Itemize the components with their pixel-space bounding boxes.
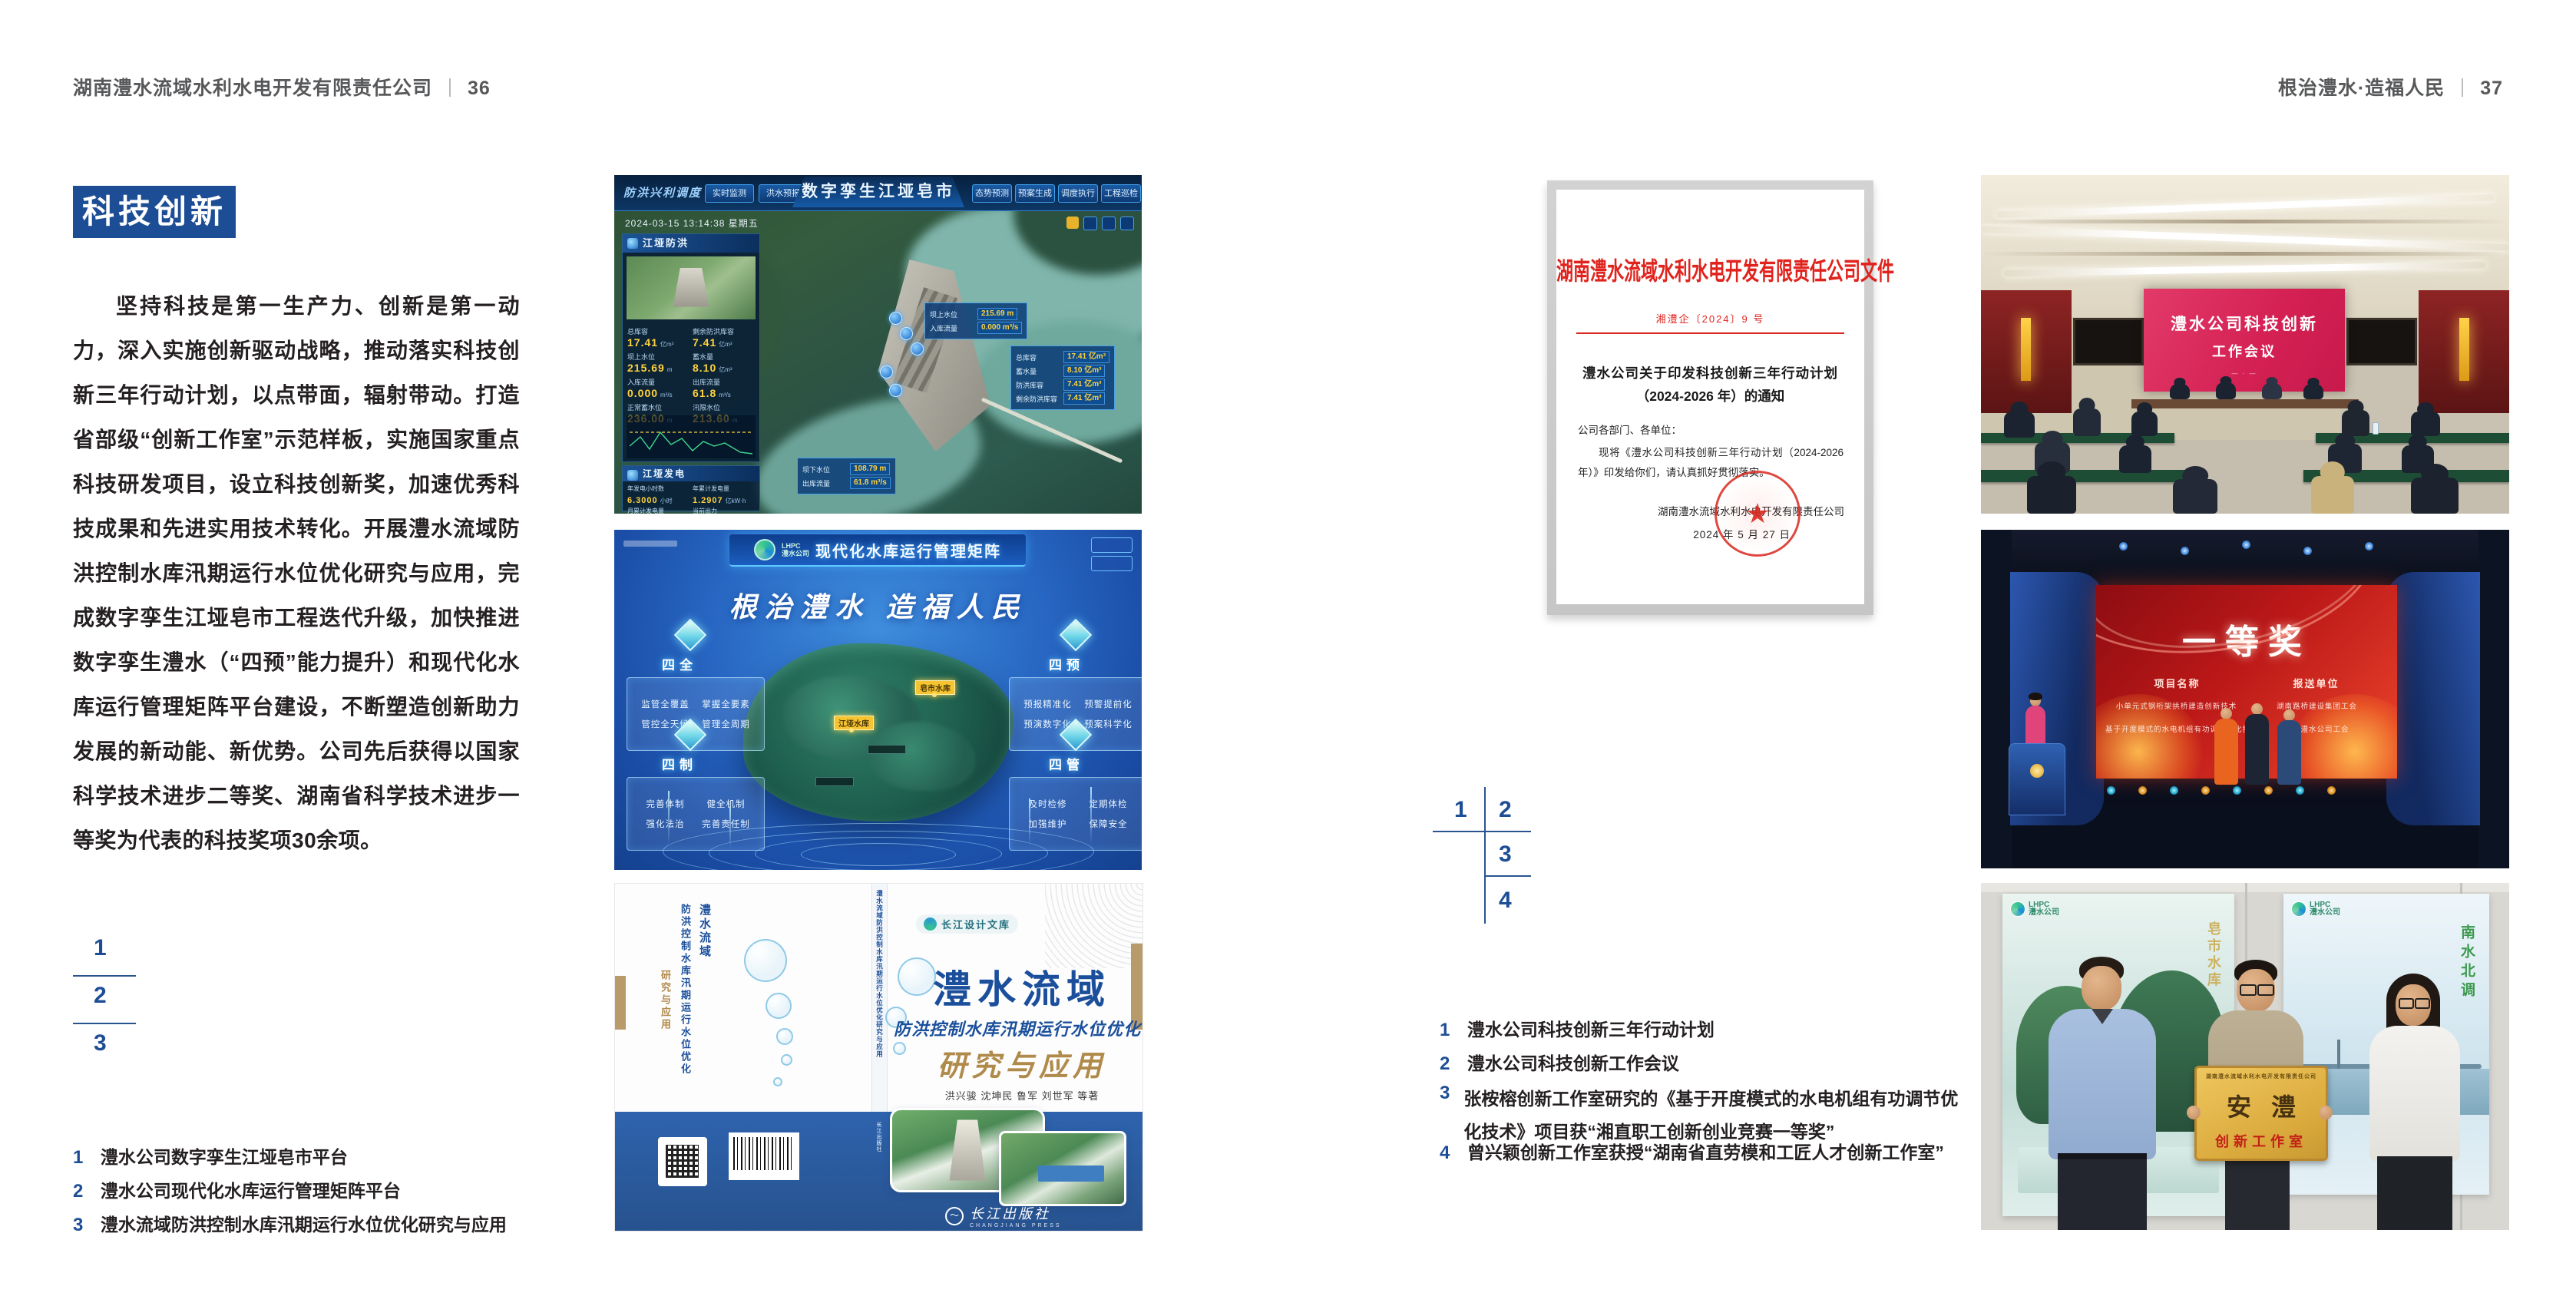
back-cover-tan-block [615, 976, 626, 1030]
stage-edge [1981, 530, 2012, 868]
gate-marker [880, 365, 893, 379]
stat: 坝上水位215.69m [627, 352, 689, 375]
figure-book-cover: 澧水流域 防洪控制水库汛期运行水位优化 研究与应用 澧水流域防洪控制水库汛期运行… [614, 883, 1143, 1232]
caption-row: 1 澧水公司数字孪生江垭皂市平台 [73, 1142, 348, 1169]
audience-silhouette [2131, 412, 2158, 436]
poster-logo: LHPC澧水公司 [2291, 901, 2340, 917]
marker-dot [849, 728, 854, 732]
lhpc-logo-text: LHPC澧水公司 [782, 542, 809, 557]
man1-trousers [2058, 1159, 2147, 1230]
man1-polo-shirt [2049, 1009, 2156, 1159]
stat: 蓄水量8.10亿m³ [693, 352, 755, 375]
photo-innovation-meeting: 澧水公司科技创新 工作会议 — · — [1981, 175, 2509, 514]
ripple-ring [801, 843, 956, 866]
document-header: 湖南澧水流域水利水电开发有限责任公司文件 [1556, 252, 1864, 287]
dam-photo-dam [949, 1119, 985, 1180]
body-paragraph: 坚持科技是第一生产力、创新是第一动力，深入实施创新驱动战略，推动落实科技创新三年… [73, 284, 520, 863]
caption-number: 3 [73, 1215, 83, 1235]
light-pillar [729, 806, 731, 848]
stage-light [2233, 786, 2241, 795]
station-marker [815, 777, 854, 786]
caption-text: 澧水公司科技创新工作会议 [1467, 1053, 1679, 1073]
audience-silhouette-yellow-coat [2311, 476, 2354, 514]
column-header-project: 项目名称 [2110, 676, 2244, 690]
lhpc-logo-icon [2291, 901, 2306, 917]
changjiang-design-logo-icon [924, 918, 937, 931]
menu-button [1091, 556, 1133, 571]
lhpc-logo-text: LHPC澧水公司 [2310, 901, 2340, 917]
book-authors: 洪兴骏 沈坤民 鲁军 刘世军 等著 [907, 1088, 1137, 1103]
tab-realtime-monitoring: 实时监测 [705, 184, 754, 203]
spine-publisher: 长江出版社 [875, 1122, 882, 1152]
podium [2009, 743, 2065, 815]
group-name-siguan: 四管 [1049, 754, 1084, 773]
spotlight [2365, 542, 2373, 551]
tab-project-inspection: 工程巡检 [1101, 184, 1141, 203]
section-badge: 科技创新 [73, 186, 236, 238]
reservoir-marker-jiangya: 江垭水库 [834, 716, 874, 730]
publisher-block: 〜 长江出版社 CHANGJIANG PRESS [945, 1203, 1062, 1228]
tooltip-row: 出库流量61.8 m³/s [802, 477, 891, 489]
host-hair [2029, 693, 2042, 700]
figure-key-3: 3 [94, 1030, 107, 1056]
stat: 月累计发电量3359.21万kW·h [627, 507, 689, 514]
series-badge: 长江设计文库 [916, 914, 1018, 934]
water-bottle [2373, 422, 2379, 435]
stage-light [2327, 786, 2336, 795]
light-pillar [1090, 787, 1092, 845]
matrix-datetime [623, 541, 677, 547]
wall-tv [2346, 318, 2417, 365]
matrix-title: 现代化水库运行管理矩阵 [815, 539, 1001, 561]
book-subtitle: 防洪控制水库汛期运行水位优化 [891, 1016, 1143, 1040]
presenter-head [2251, 703, 2263, 715]
caption-number: 1 [73, 1147, 83, 1168]
flood-stats: 总库容17.41亿m³ 剩余防洪库容7.41亿m³ 坝上水位215.69m 蓄水… [623, 323, 759, 429]
bubble [893, 1042, 906, 1055]
caption-number: 4 [1440, 1142, 1450, 1163]
screen-title-line2: 工作会议 [2144, 341, 2345, 361]
page-number-left: 36 [468, 78, 491, 99]
tooltip-row: 总库容17.41 亿m³ [1016, 351, 1109, 363]
stage-light [2264, 786, 2273, 795]
caption-text: 澧水公司科技创新三年行动计划 [1467, 1020, 1715, 1040]
group-name-sizhi: 四制 [662, 754, 697, 773]
tooltip-row: 坝上水位215.69 m [930, 308, 1022, 320]
stage-light [2201, 786, 2210, 795]
man2-glasses-icon [2257, 984, 2274, 996]
screen-date-line: — · — [2144, 370, 2345, 377]
caption-row: 1 澧水公司科技创新三年行动计划 [1440, 1015, 1715, 1041]
unit-row: 湖南路桥建设集团工会 [2246, 700, 2388, 711]
book-title: 澧水流域 [907, 959, 1137, 1014]
audience-silhouette [2073, 408, 2101, 436]
meeting-screen: 澧水公司科技创新 工作会议 — · — [2144, 289, 2345, 392]
stat: 年累计发电量1.2907亿kW·h [693, 484, 755, 507]
powerhouse-photo [999, 1131, 1126, 1206]
speaker-silhouette [2262, 383, 2282, 399]
publisher-name-en: CHANGJIANG PRESS [970, 1223, 1062, 1228]
lhpc-logo-icon [754, 539, 775, 560]
user-icon [1066, 217, 1079, 229]
gate-marker [900, 327, 913, 340]
figure-key-line [73, 1023, 136, 1024]
tooltip-row: 防洪库容7.41 亿m³ [1016, 379, 1109, 391]
caption-row: 3 澧水流域防洪控制水库汛期运行水位优化研究与应用 [73, 1210, 507, 1236]
winner-head [2283, 709, 2295, 721]
audience-silhouette-foreground [2173, 479, 2217, 514]
innovation-studio-plaque: 湖南澧水流域水利水电开发有限责任公司 安澧 创新工作室 [2194, 1066, 2328, 1161]
document-paper: 湖南澧水流域水利水电开发有限责任公司文件 湘澧企〔2024〕9 号 澧水公司关于… [1556, 190, 1864, 604]
stage-light-row [2096, 786, 2408, 798]
publisher-name: 长江出版社 [970, 1203, 1062, 1223]
tab-situation-forecast: 态势预测 [972, 184, 1012, 203]
stage-edge [2478, 530, 2509, 868]
stat: 出库流量61.8m³/s [693, 377, 755, 401]
publisher-logo-icon: 〜 [945, 1207, 964, 1225]
figure-key-vline [1484, 787, 1486, 924]
back-title2-vertical: 研究与应用 [658, 970, 673, 1031]
caption-text: 澧水公司现代化水库运行管理矩阵平台 [101, 1181, 401, 1201]
woman-tshirt [2369, 1026, 2460, 1161]
caption-text: 澧水流域防洪控制水库汛期运行水位优化研究与应用 [101, 1215, 507, 1235]
bubble [744, 939, 787, 982]
book-spine: 澧水流域防洪控制水库汛期运行水位优化研究与应用 [871, 884, 888, 1112]
audience-table [1981, 470, 2187, 482]
flood-panel: 江垭防洪 总库容17.41亿m³ 剩余防洪库容7.41亿m³ 坝上水位215.6… [622, 233, 760, 462]
dashboard-brand: 防洪兴利调度 [623, 184, 702, 200]
tab-dispatch-execution: 调度执行 [1058, 184, 1098, 203]
tooltip-upstream: 坝上水位215.69 m 入库流量0.000 m³/s [924, 303, 1027, 339]
bubble [776, 1028, 793, 1045]
figure-key-4: 4 [1499, 888, 1512, 914]
powerhouse-roof [1038, 1165, 1104, 1181]
document-salutation: 公司各部门、各单位： [1578, 422, 1682, 437]
flood-panel-title: 江垭防洪 [623, 234, 759, 253]
caption-number: 2 [73, 1181, 83, 1202]
caption-number: 1 [1440, 1020, 1450, 1040]
tooltip-capacity: 总库容17.41 亿m³ 蓄水量8.10 亿m³ 防洪库容7.41 亿m³ 剩余… [1010, 346, 1115, 410]
wall-lamp [2021, 318, 2031, 381]
audience-silhouette-foreground [2027, 476, 2076, 514]
speaker-silhouette [2170, 384, 2190, 399]
woman-skirt [2377, 1156, 2452, 1230]
tooltip-row: 剩余防洪库容7.41 亿m³ [1016, 392, 1109, 405]
dam-thumbnail-dam [673, 268, 709, 307]
man2-hand [2187, 1106, 2201, 1119]
tooltip-row: 蓄水量8.10 亿m³ [1016, 365, 1109, 377]
rostrum-table [2131, 399, 2359, 408]
winner-orange [2214, 719, 2238, 785]
header-divider [449, 78, 451, 97]
official-document: 湖南澧水流域水利水电开发有限责任公司文件 湘澧企〔2024〕9 号 澧水公司关于… [1547, 180, 1873, 615]
podium-emblem-icon [2030, 764, 2044, 778]
figure-key-line [73, 975, 136, 977]
matrix-slogan: 根治澧水 造福人民 [614, 585, 1142, 625]
lhpc-logo-icon [2010, 901, 2025, 917]
caption-row: 4 曾兴颖创新工作室获授“湖南省直劳模和工匠人才创新工作室” [1440, 1138, 1944, 1164]
back-title-vertical: 澧水流域 [696, 904, 713, 959]
header-right-title: 根治澧水·造福人民 [2278, 78, 2445, 99]
man2-hand [2319, 1106, 2333, 1119]
figure-matrix-platform: LHPC澧水公司 现代化水库运行管理矩阵 根治澧水 造福人民 皂市水库 江垭水库… [614, 530, 1142, 870]
stat: 当前出力0.00MW [693, 507, 755, 514]
wall-lamp [2459, 318, 2469, 381]
presenter-suit [2245, 714, 2269, 785]
document-title-line1: 澧水公司关于印发科技创新三年行动计划 [1556, 363, 1864, 382]
official-seal: ★ [1715, 471, 1801, 557]
power-stats: 年发电小时数6.3000小时 年累计发电量1.2907亿kW·h 月累计发电量3… [623, 481, 759, 514]
tooltip-downstream: 坝下水位108.79 m 出库流量61.8 m³/s [797, 458, 896, 494]
plaque-subtitle: 创新工作室 [2197, 1131, 2326, 1151]
winner-head [2221, 708, 2232, 719]
figure-key-3: 3 [1499, 841, 1512, 868]
woman-glasses-icon [2399, 998, 2414, 1009]
woman-glasses-icon [2415, 998, 2430, 1009]
stage-light [2170, 786, 2178, 795]
photo-plaque-team: LHPC澧水公司 皂市水库 LHPC澧水公司 南水北调 [1981, 883, 2509, 1230]
caption-text: 澧水公司数字孪生江垭皂市平台 [101, 1147, 348, 1167]
halftone-decoration [1045, 884, 1143, 968]
power-panel-title: 江垭发电 [623, 466, 759, 481]
speaker-silhouette [2216, 382, 2236, 399]
layers-icon [1083, 217, 1097, 230]
audience-silhouette [2411, 412, 2440, 436]
caption-row: 2 澧水公司现代化水库运行管理矩阵平台 [73, 1176, 401, 1202]
back-subtitle-vertical: 防洪控制水库汛期运行水位优化 [678, 904, 693, 1096]
screen-title-line1: 澧水公司科技创新 [2144, 312, 2345, 335]
power-panel: 江垭发电 年发电小时数6.3000小时 年累计发电量1.2907亿kW·h 月累… [622, 465, 760, 511]
photo-award-ceremony: 一等奖 项目名称 报送单位 小单元式钢桁架拱桥建造创新技术 基于开度模式的水电机… [1981, 530, 2509, 868]
gate-marker [889, 312, 902, 325]
locate-icon [1102, 217, 1116, 230]
water-level-chart [627, 415, 756, 458]
marker-dot [932, 693, 937, 697]
poster-logo: LHPC澧水公司 [2010, 901, 2059, 917]
spotlight [2119, 542, 2128, 551]
dashboard-toolbar-icons [1066, 217, 1134, 230]
tab-plan-generation: 预案生成 [1015, 184, 1055, 203]
dashboard-title: 数字孪生江垭皂市 [792, 177, 964, 207]
figure-key-1: 1 [1454, 797, 1467, 823]
figure-key-line [1484, 875, 1531, 877]
figure-digital-twin-dashboard: 防洪兴利调度 实时监测 洪水预报 防洪预警 数字孪生江垭皂市 态势预测 预案生成… [614, 175, 1142, 514]
figure-key-2: 2 [94, 983, 107, 1009]
dashboard-timestamp: 2024-03-15 13:14:38 星期五 [625, 217, 759, 230]
stage-light [2138, 786, 2147, 795]
stat: 总库容17.41亿m³ [627, 326, 689, 350]
bubble [773, 1077, 782, 1086]
spine-title: 澧水流域防洪控制水库汛期运行水位优化研究与应用 [875, 890, 885, 1105]
poster-calligraphy: 皂市水库 [2204, 921, 2224, 989]
header-right: 根治澧水·造福人民37 [2278, 73, 2503, 101]
figure-key-2: 2 [1499, 797, 1512, 823]
audience-silhouette [2119, 445, 2151, 473]
group-name-siyu: 四预 [1049, 654, 1084, 673]
light-pillar [668, 791, 670, 845]
caption-text: 曾兴颖创新工作室获授“湖南省直劳模和工匠人才创新工作室” [1467, 1142, 1944, 1162]
tooltip-row: 坝下水位108.79 m [802, 463, 891, 475]
figure-key-1: 1 [94, 935, 107, 961]
poster-vertical-text: 南水北调 [2456, 924, 2477, 1001]
settings-icon [1120, 217, 1134, 230]
stat: 年发电小时数6.3000小时 [627, 484, 689, 507]
spotlight [2181, 547, 2189, 555]
caption-row: 2 澧水公司科技创新工作会议 [1440, 1049, 1679, 1075]
seal-star-icon: ★ [1745, 498, 1770, 530]
lhpc-logo-text: LHPC澧水公司 [2029, 901, 2059, 917]
dam-thumbnail [627, 256, 756, 319]
page-number-right: 37 [2480, 78, 2503, 99]
matrix-header: LHPC澧水公司 现代化水库运行管理矩阵 [729, 534, 1026, 567]
bubble [766, 993, 792, 1019]
speaker-silhouette [2303, 384, 2323, 399]
page-spread: 湖南澧水流域水利水电开发有限责任公司36 根治澧水·造福人民37 科技创新 坚持… [0, 0, 2576, 1306]
man1-belt [2058, 1153, 2147, 1159]
book-title2: 研究与应用 [907, 1042, 1137, 1084]
barcode [729, 1132, 799, 1180]
audience-silhouette [2004, 412, 2035, 438]
document-title-line2: （2024-2026 年）的通知 [1556, 386, 1864, 405]
group-name-siquan: 四全 [662, 654, 697, 673]
stat: 入库流量0.000m³/s [627, 377, 689, 401]
man2-trousers [2225, 1156, 2290, 1230]
weather-button [1091, 537, 1133, 553]
audience-silhouette-foreground [2411, 478, 2459, 514]
header-left-title: 湖南澧水流域水利水电开发有限责任公司 [73, 78, 432, 99]
wall-tv [2073, 318, 2144, 365]
spotlight [2242, 541, 2250, 549]
spotlight [2303, 547, 2312, 555]
stage-light [2107, 786, 2115, 795]
series-name: 长江设计文库 [941, 917, 1010, 931]
document-number: 湘澧企〔2024〕9 号 [1556, 311, 1864, 326]
ceiling-beam [1981, 252, 2509, 256]
poster-bridge-tower [2337, 1040, 2340, 1069]
figure-key-line [1433, 831, 1531, 832]
light-pillar [1029, 798, 1030, 845]
qr-code [658, 1137, 707, 1186]
header-divider [2462, 78, 2463, 97]
ceiling-beam [1981, 220, 2509, 223]
gate-marker [889, 384, 902, 397]
column-header-unit: 报送单位 [2249, 676, 2383, 690]
stat: 剩余防洪库容7.41亿m³ [693, 326, 755, 350]
document-body: 现将《澧水公司科技创新三年行动计划（2024-2026 年）》印发给你们，请认真… [1578, 443, 1844, 483]
plaque-name: 安澧 [2197, 1088, 2326, 1123]
station-marker [868, 745, 906, 754]
man2-glasses-icon [2240, 984, 2257, 996]
tooltip-row: 入库流量0.000 m³/s [930, 322, 1022, 334]
winner-blue [2277, 720, 2301, 785]
caption-number: 2 [1440, 1053, 1450, 1074]
man1-face [2082, 966, 2121, 1010]
gate-marker [911, 342, 924, 355]
header-left: 湖南澧水流域水利水电开发有限责任公司36 [73, 73, 491, 101]
bubble [781, 1054, 792, 1066]
plaque-org-line: 湖南澧水流域水利水电开发有限责任公司 [2197, 1073, 2326, 1080]
stage-light [2296, 786, 2304, 795]
document-red-rule [1576, 332, 1844, 334]
